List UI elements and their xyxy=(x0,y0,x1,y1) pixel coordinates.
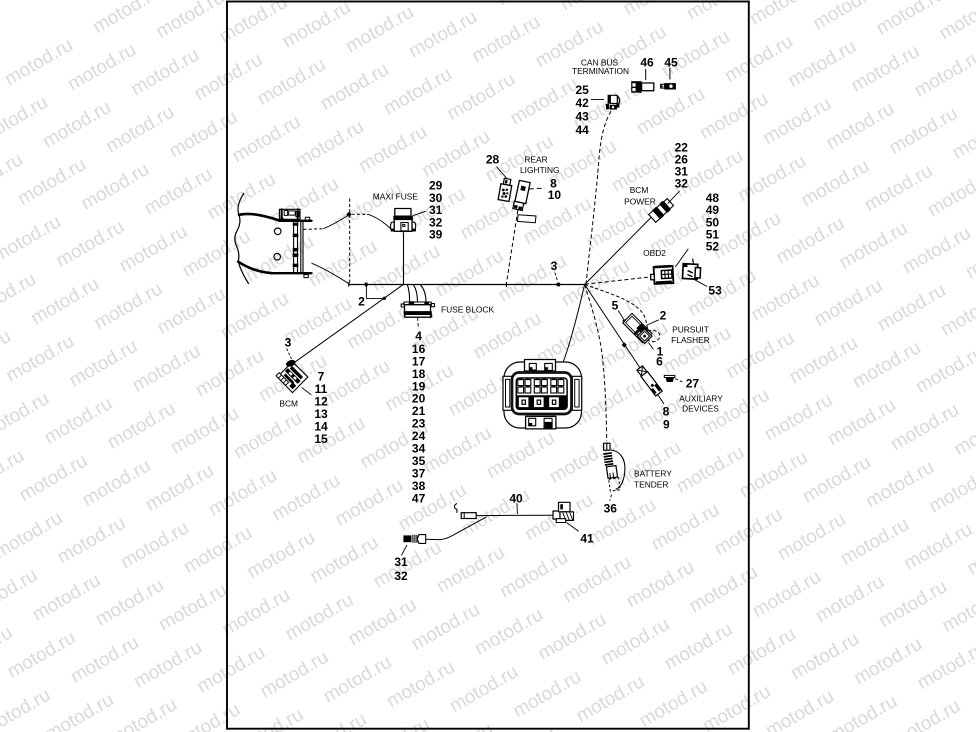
svg-text:motod.ru: motod.ru xyxy=(876,576,951,632)
svg-text:motod.ru: motod.ru xyxy=(380,64,455,120)
svg-text:motod.ru: motod.ru xyxy=(836,218,911,274)
svg-text:motod.ru: motod.ru xyxy=(936,0,976,44)
svg-text:motod.ru: motod.ru xyxy=(155,580,230,636)
svg-text:motod.ru: motod.ru xyxy=(661,619,736,675)
svg-text:motod.ru: motod.ru xyxy=(91,278,166,334)
svg-text:motod.ru: motod.ru xyxy=(395,480,470,536)
svg-text:2: 2 xyxy=(660,309,667,323)
svg-text:motod.ru: motod.ru xyxy=(141,164,216,220)
svg-text:motod.ru: motod.ru xyxy=(787,629,862,685)
svg-text:motod.ru: motod.ru xyxy=(762,686,837,732)
svg-text:motod.ru: motod.ru xyxy=(317,59,392,115)
svg-text:motod.ru: motod.ru xyxy=(546,432,621,488)
svg-text:motod.ru: motod.ru xyxy=(495,251,570,307)
svg-text:motod.ru: motod.ru xyxy=(29,570,104,626)
svg-text:motod.ru: motod.ru xyxy=(911,46,976,102)
svg-text:motod.ru: motod.ru xyxy=(811,275,886,331)
svg-text:FLASHER: FLASHER xyxy=(671,335,710,345)
svg-text:motod.ru: motod.ru xyxy=(269,470,344,526)
svg-text:motod.ru: motod.ru xyxy=(1,35,76,91)
svg-text:motod.ru: motod.ru xyxy=(912,342,976,398)
svg-text:motod.ru: motod.ru xyxy=(560,552,635,608)
svg-text:motod.ru: motod.ru xyxy=(810,0,885,34)
svg-text:43: 43 xyxy=(576,110,590,124)
svg-text:REAR: REAR xyxy=(524,154,547,164)
svg-text:motod.ru: motod.ru xyxy=(254,54,329,110)
svg-text:motod.ru: motod.ru xyxy=(408,599,483,655)
svg-text:motod.ru: motod.ru xyxy=(510,666,585,722)
svg-text:motod.ru: motod.ru xyxy=(79,455,154,511)
svg-text:motod.ru: motod.ru xyxy=(798,156,873,212)
svg-text:motod.ru: motod.ru xyxy=(432,246,507,302)
svg-text:52: 52 xyxy=(706,240,720,254)
svg-text:motod.ru: motod.ru xyxy=(899,223,974,279)
svg-text:motod.ru: motod.ru xyxy=(153,0,228,43)
svg-text:15: 15 xyxy=(314,432,328,446)
svg-text:motod.ru: motod.ru xyxy=(696,88,771,144)
svg-text:motod.ru: motod.ru xyxy=(571,375,646,431)
svg-text:53: 53 xyxy=(708,284,722,298)
svg-text:BCM: BCM xyxy=(630,185,649,195)
svg-text:motod.ru: motod.ru xyxy=(219,585,294,641)
svg-text:motod.ru: motod.ru xyxy=(901,519,976,575)
svg-text:41: 41 xyxy=(580,532,594,546)
svg-text:motod.ru: motod.ru xyxy=(785,36,860,92)
svg-text:motod.ru: motod.ru xyxy=(558,255,633,311)
svg-text:40: 40 xyxy=(509,492,523,506)
svg-text:motod.ru: motod.ru xyxy=(92,575,167,631)
svg-text:motod.ru: motod.ru xyxy=(129,341,204,397)
svg-text:6: 6 xyxy=(656,354,663,368)
svg-text:POWER: POWER xyxy=(624,196,656,206)
svg-text:MAXI FUSE: MAXI FUSE xyxy=(373,191,419,201)
svg-text:36: 36 xyxy=(604,501,618,515)
svg-text:LIGHTING: LIGHTING xyxy=(520,165,560,175)
svg-text:motod.ru: motod.ru xyxy=(167,403,242,459)
svg-text:motod.ru: motod.ru xyxy=(583,198,658,254)
svg-text:motod.ru: motod.ru xyxy=(205,465,280,521)
svg-text:motod.ru: motod.ru xyxy=(812,571,887,627)
svg-text:42: 42 xyxy=(576,96,590,110)
svg-text:motod.ru: motod.ru xyxy=(723,327,798,383)
svg-text:motod.ru: motod.ru xyxy=(54,513,129,569)
svg-text:motod.ru: motod.ru xyxy=(786,332,861,388)
svg-text:motod.ru: motod.ru xyxy=(826,691,901,732)
svg-text:AUXILIARY: AUXILIARY xyxy=(679,393,723,403)
svg-text:motod.ru: motod.ru xyxy=(419,126,494,182)
svg-text:motod.ru: motod.ru xyxy=(837,514,912,570)
svg-text:10: 10 xyxy=(548,188,562,202)
svg-text:motod.ru: motod.ru xyxy=(369,241,444,297)
svg-text:3: 3 xyxy=(551,259,558,273)
svg-text:31: 31 xyxy=(394,555,408,569)
svg-text:motod.ru: motod.ru xyxy=(180,522,255,578)
svg-text:motod.ru: motod.ru xyxy=(154,283,229,339)
svg-text:motod.ru: motod.ru xyxy=(736,447,811,503)
svg-text:3: 3 xyxy=(285,336,292,350)
svg-text:motod.ru: motod.ru xyxy=(39,97,114,153)
svg-text:DEVICES: DEVICES xyxy=(682,403,719,413)
svg-text:motod.ru: motod.ru xyxy=(823,98,898,154)
svg-text:motod.ru: motod.ru xyxy=(886,103,961,159)
svg-text:motod.ru: motod.ru xyxy=(42,689,117,732)
svg-text:motod.ru: motod.ru xyxy=(103,102,178,158)
svg-text:motod.ru: motod.ru xyxy=(128,44,203,100)
svg-text:motod.ru: motod.ru xyxy=(799,452,874,508)
svg-text:motod.ru: motod.ru xyxy=(192,346,267,402)
svg-text:motod.ru: motod.ru xyxy=(116,221,191,277)
svg-text:motod.ru: motod.ru xyxy=(229,111,304,167)
svg-text:motod.ru: motod.ru xyxy=(469,12,544,68)
svg-text:motod.ru: motod.ru xyxy=(749,566,824,622)
svg-text:motod.ru: motod.ru xyxy=(117,517,192,573)
svg-text:motod.ru: motod.ru xyxy=(279,0,354,53)
svg-text:motod.ru: motod.ru xyxy=(320,652,395,708)
svg-text:TENDER: TENDER xyxy=(634,480,668,490)
svg-text:OBD2: OBD2 xyxy=(643,248,666,258)
svg-text:9: 9 xyxy=(663,417,670,431)
svg-text:motod.ru: motod.ru xyxy=(142,460,217,516)
svg-text:motod.ru: motod.ru xyxy=(623,557,698,613)
svg-text:motod.ru: motod.ru xyxy=(848,41,923,97)
svg-text:motod.ru: motod.ru xyxy=(345,594,420,650)
svg-text:motod.ru: motod.ru xyxy=(849,337,924,393)
svg-text:motod.ru: motod.ru xyxy=(355,121,430,177)
svg-text:motod.ru: motod.ru xyxy=(405,7,480,63)
svg-text:motod.ru: motod.ru xyxy=(446,661,521,717)
svg-text:motod.ru: motod.ru xyxy=(760,93,835,149)
svg-text:45: 45 xyxy=(664,55,678,69)
svg-text:motod.ru: motod.ru xyxy=(573,671,648,727)
svg-text:motod.ru: motod.ru xyxy=(169,699,244,732)
svg-text:motod.ru: motod.ru xyxy=(721,31,796,87)
svg-text:motod.ru: motod.ru xyxy=(166,107,241,163)
svg-text:motod.ru: motod.ru xyxy=(78,159,153,215)
svg-text:motod.ru: motod.ru xyxy=(874,280,949,336)
svg-text:motod.ru: motod.ru xyxy=(724,624,799,680)
svg-text:4: 4 xyxy=(415,329,422,343)
svg-text:motod.ru: motod.ru xyxy=(104,398,179,454)
svg-text:motod.ru: motod.ru xyxy=(710,208,785,264)
svg-text:motod.ru: motod.ru xyxy=(294,413,369,469)
svg-text:motod.ru: motod.ru xyxy=(282,589,357,645)
svg-text:motod.ru: motod.ru xyxy=(433,542,508,598)
svg-text:motod.ru: motod.ru xyxy=(824,395,899,451)
svg-text:motod.ru: motod.ru xyxy=(889,696,964,732)
svg-text:25: 25 xyxy=(576,83,590,97)
svg-text:motod.ru: motod.ru xyxy=(3,331,78,387)
svg-text:motod.ru: motod.ru xyxy=(105,694,180,732)
svg-text:motod.ru: motod.ru xyxy=(648,499,723,555)
svg-text:motod.ru: motod.ru xyxy=(292,116,367,172)
svg-text:motod.ru: motod.ru xyxy=(28,274,103,330)
svg-text:motod.ru: motod.ru xyxy=(507,74,582,130)
svg-text:motod.ru: motod.ru xyxy=(774,509,849,565)
svg-text:motod.ru: motod.ru xyxy=(53,216,128,272)
svg-text:motod.ru: motod.ru xyxy=(535,609,610,665)
svg-text:motod.ru: motod.ru xyxy=(342,2,417,58)
svg-text:motod.ru: motod.ru xyxy=(332,475,407,531)
svg-text:motod.ru: motod.ru xyxy=(686,562,761,618)
svg-text:motod.ru: motod.ru xyxy=(305,236,380,292)
svg-text:motod.ru: motod.ru xyxy=(444,69,519,125)
svg-text:motod.ru: motod.ru xyxy=(280,293,355,349)
svg-text:motod.ru: motod.ru xyxy=(421,719,496,732)
svg-text:motod.ru: motod.ru xyxy=(851,634,926,690)
svg-text:motod.ru: motod.ru xyxy=(4,627,79,683)
svg-text:motod.ru: motod.ru xyxy=(761,390,836,446)
svg-text:motod.ru: motod.ru xyxy=(257,647,332,703)
svg-text:motod.ru: motod.ru xyxy=(861,160,936,216)
svg-text:motod.ru: motod.ru xyxy=(673,442,748,498)
svg-text:motod.ru: motod.ru xyxy=(130,637,205,693)
svg-text:PURSUIT: PURSUIT xyxy=(672,324,709,334)
svg-text:motod.ru: motod.ru xyxy=(496,547,571,603)
svg-text:46: 46 xyxy=(640,55,654,69)
svg-text:motod.ru: motod.ru xyxy=(483,427,558,483)
svg-text:2: 2 xyxy=(358,294,365,308)
svg-text:motod.ru: motod.ru xyxy=(862,457,937,513)
svg-text:motod.ru: motod.ru xyxy=(217,288,292,344)
svg-text:BATTERY: BATTERY xyxy=(634,469,672,479)
svg-text:BCM: BCM xyxy=(279,399,298,409)
svg-text:motod.ru: motod.ru xyxy=(14,154,89,210)
svg-text:motod.ru: motod.ru xyxy=(383,657,458,713)
svg-text:motod.ru: motod.ru xyxy=(420,422,495,478)
svg-text:motod.ru: motod.ru xyxy=(735,151,810,207)
svg-text:39: 39 xyxy=(429,228,443,242)
svg-text:motod.ru: motod.ru xyxy=(633,84,708,140)
svg-text:motod.ru: motod.ru xyxy=(598,614,673,670)
svg-text:motod.ru: motod.ru xyxy=(585,494,660,550)
svg-text:motod.ru: motod.ru xyxy=(89,0,164,38)
svg-text:motod.ru: motod.ru xyxy=(194,642,269,698)
svg-text:motod.ru: motod.ru xyxy=(319,355,394,411)
svg-text:5: 5 xyxy=(612,299,619,313)
svg-text:32: 32 xyxy=(394,569,408,583)
svg-text:motod.ru: motod.ru xyxy=(873,0,948,39)
svg-text:motod.ru: motod.ru xyxy=(67,632,142,688)
svg-text:47: 47 xyxy=(412,491,426,505)
svg-text:motod.ru: motod.ru xyxy=(470,308,545,364)
svg-text:32: 32 xyxy=(675,177,689,191)
svg-text:motod.ru: motod.ru xyxy=(887,399,962,455)
svg-text:motod.ru: motod.ru xyxy=(191,49,266,105)
svg-text:motod.ru: motod.ru xyxy=(41,393,116,449)
svg-text:motod.ru: motod.ru xyxy=(230,408,305,464)
svg-text:motod.ru: motod.ru xyxy=(307,532,382,588)
svg-text:motod.ru: motod.ru xyxy=(636,676,711,732)
svg-text:TERMINATION: TERMINATION xyxy=(572,66,629,76)
svg-text:FUSE BLOCK: FUSE BLOCK xyxy=(441,304,494,314)
svg-text:motod.ru: motod.ru xyxy=(773,213,848,269)
svg-text:27: 27 xyxy=(686,377,700,391)
svg-text:motod.ru: motod.ru xyxy=(16,450,91,506)
svg-text:motod.ru: motod.ru xyxy=(66,336,141,392)
svg-text:motod.ru: motod.ru xyxy=(64,39,139,95)
svg-text:motod.ru: motod.ru xyxy=(471,604,546,660)
svg-text:motod.ru: motod.ru xyxy=(244,527,319,583)
svg-text:44: 44 xyxy=(576,123,590,137)
svg-text:28: 28 xyxy=(486,153,500,167)
svg-text:motod.ru: motod.ru xyxy=(748,270,823,326)
